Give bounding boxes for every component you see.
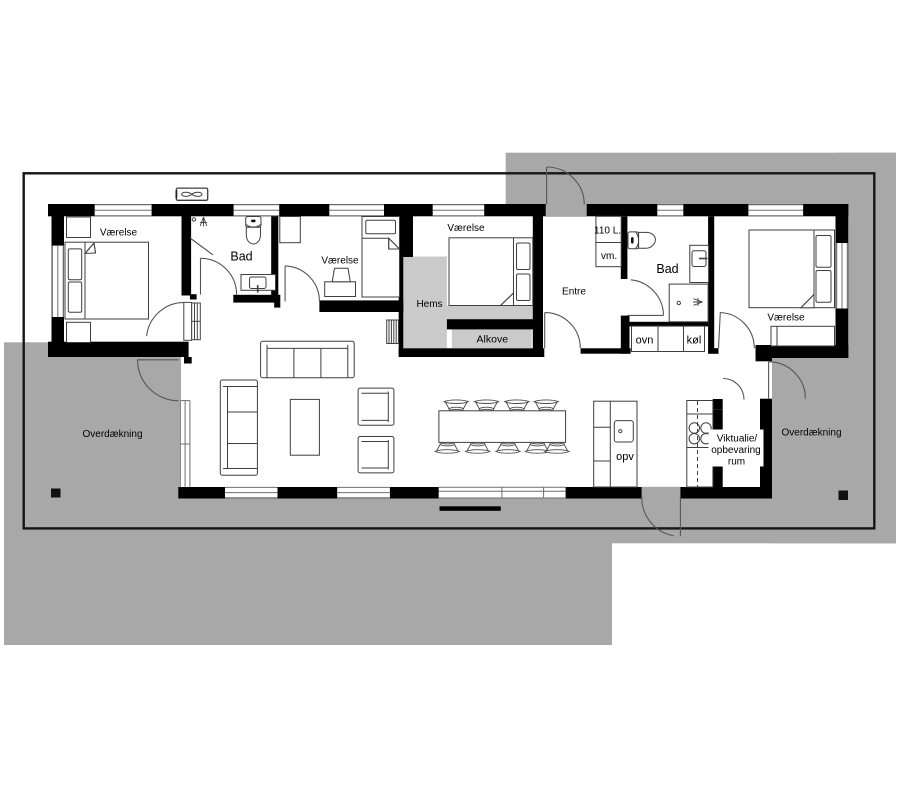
svg-text:Bad: Bad	[230, 250, 252, 264]
svg-text:Alkove: Alkove	[477, 334, 509, 346]
svg-text:køl: køl	[687, 335, 702, 347]
svg-text:Værelse: Værelse	[100, 228, 138, 239]
svg-text:ovn: ovn	[636, 335, 654, 347]
svg-text:Værelse: Værelse	[767, 313, 805, 324]
svg-text:opv: opv	[616, 451, 634, 463]
svg-text:Bad: Bad	[656, 262, 678, 276]
svg-text:Overdækning: Overdækning	[781, 428, 841, 439]
svg-text:rum: rum	[728, 457, 745, 468]
svg-text:Entre: Entre	[562, 287, 586, 298]
svg-text:Overdækning: Overdækning	[82, 429, 142, 440]
svg-text:Hems: Hems	[416, 299, 442, 310]
svg-text:Værelse: Værelse	[321, 256, 359, 267]
svg-text:opbevaring: opbevaring	[711, 445, 760, 456]
svg-text:Værelse: Værelse	[447, 223, 485, 234]
svg-text:110 L.: 110 L.	[594, 226, 621, 237]
svg-text:Viktualie/: Viktualie/	[717, 434, 758, 445]
svg-text:vm.: vm.	[601, 251, 617, 262]
